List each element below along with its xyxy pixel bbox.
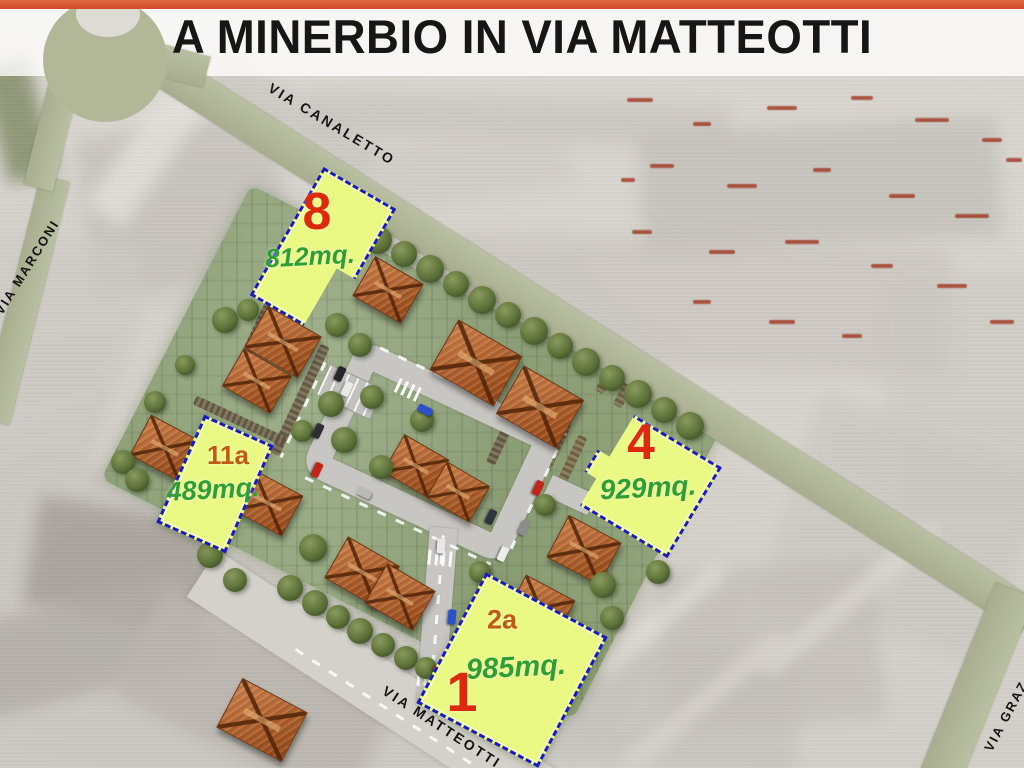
photo-red-roof-speck [693, 122, 711, 126]
photo-red-roof-speck [851, 96, 873, 100]
photo-red-roof-speck [889, 194, 915, 198]
tree [599, 365, 625, 391]
photo-building-blob [623, 630, 786, 768]
tree [547, 333, 573, 359]
photo-red-roof-speck [632, 230, 652, 234]
tree [646, 560, 670, 584]
photo-red-roof-speck [955, 214, 989, 218]
tree [237, 299, 259, 321]
plot-4-number: 4 [627, 417, 655, 467]
tree [223, 568, 247, 592]
tree [468, 286, 496, 314]
photo-red-roof-speck [842, 334, 862, 338]
photo-red-roof-speck [813, 168, 831, 172]
page-title: A MINERBIO IN VIA MATTEOTTI [172, 9, 872, 64]
tree [331, 427, 357, 453]
tree [299, 534, 327, 562]
photo-building-blob [637, 116, 1003, 255]
plot-2a-number: 2a [487, 607, 517, 634]
top-accent-bar [0, 0, 1024, 9]
tree [624, 380, 652, 408]
tree [391, 241, 417, 267]
plot-8-number: 8 [303, 186, 332, 238]
photo-building-blob [655, 558, 886, 733]
tree [175, 355, 195, 375]
tree [600, 606, 624, 630]
photo-red-roof-speck [627, 98, 653, 102]
photo-building-blob [0, 569, 208, 720]
flyer-canvas: 8812mq.11a489mq.4929mq.2a985mq.1 VIA CAN… [0, 0, 1024, 768]
photo-red-roof-speck [693, 300, 711, 304]
tree [676, 412, 704, 440]
photo-red-roof-speck [785, 240, 819, 244]
photo-red-roof-speck [769, 320, 795, 324]
photo-red-roof-speck [982, 138, 1002, 142]
tree [302, 590, 328, 616]
plot-11a-area: 489mq. [166, 474, 260, 506]
photo-red-roof-speck [937, 284, 967, 288]
tree [144, 391, 166, 413]
car [436, 538, 445, 554]
photo-red-roof-speck [621, 178, 635, 182]
photo-red-roof-speck [1006, 158, 1022, 162]
plot-8-area: 812mq. [265, 241, 356, 272]
plot-11a-number: 11a [207, 442, 249, 468]
tree [348, 333, 372, 357]
tree [125, 468, 149, 492]
photo-red-roof-speck [727, 184, 757, 188]
tree [360, 385, 384, 409]
plot-4-area: 929mq. [599, 471, 697, 504]
tree [326, 605, 350, 629]
tree [520, 317, 548, 345]
tree [572, 348, 600, 376]
tree [590, 572, 616, 598]
car [447, 609, 456, 625]
photo-red-roof-speck [709, 250, 735, 254]
tree [443, 271, 469, 297]
photo-red-roof-speck [915, 118, 949, 122]
plot-1-number: 1 [446, 664, 477, 720]
photo-red-roof-speck [650, 164, 674, 168]
tree [495, 302, 521, 328]
tree [347, 618, 373, 644]
tree [212, 307, 238, 333]
tree [416, 255, 444, 283]
tree [291, 420, 313, 442]
tree [318, 391, 344, 417]
photo-red-roof-speck [990, 320, 1014, 324]
tree [325, 313, 349, 337]
tree [277, 575, 303, 601]
tree [369, 455, 393, 479]
photo-building-blob [885, 275, 1024, 535]
photo-red-roof-speck [767, 106, 797, 110]
plot-2a-area: 985mq. [465, 651, 566, 685]
tree [534, 494, 556, 516]
tree [371, 633, 395, 657]
photo-red-roof-speck [871, 264, 893, 268]
